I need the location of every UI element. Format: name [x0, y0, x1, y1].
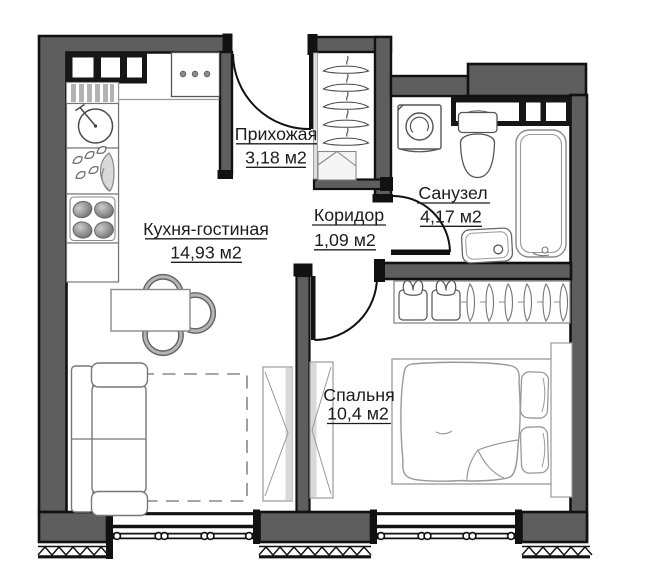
svg-text:3,18 м2: 3,18 м2 [245, 148, 307, 168]
svg-text:10,4 м2: 10,4 м2 [327, 404, 389, 424]
svg-text:Кухня-гостиная: Кухня-гостиная [143, 219, 269, 239]
svg-text:Спальня: Спальня [323, 385, 394, 405]
svg-text:14,93 м2: 14,93 м2 [170, 243, 242, 263]
svg-text:4,17 м2: 4,17 м2 [420, 207, 482, 227]
svg-text:Прихожая: Прихожая [235, 124, 317, 144]
svg-text:Санузел: Санузел [418, 183, 487, 203]
svg-text:1,09 м2: 1,09 м2 [314, 230, 376, 250]
svg-text:Коридор: Коридор [314, 205, 384, 225]
